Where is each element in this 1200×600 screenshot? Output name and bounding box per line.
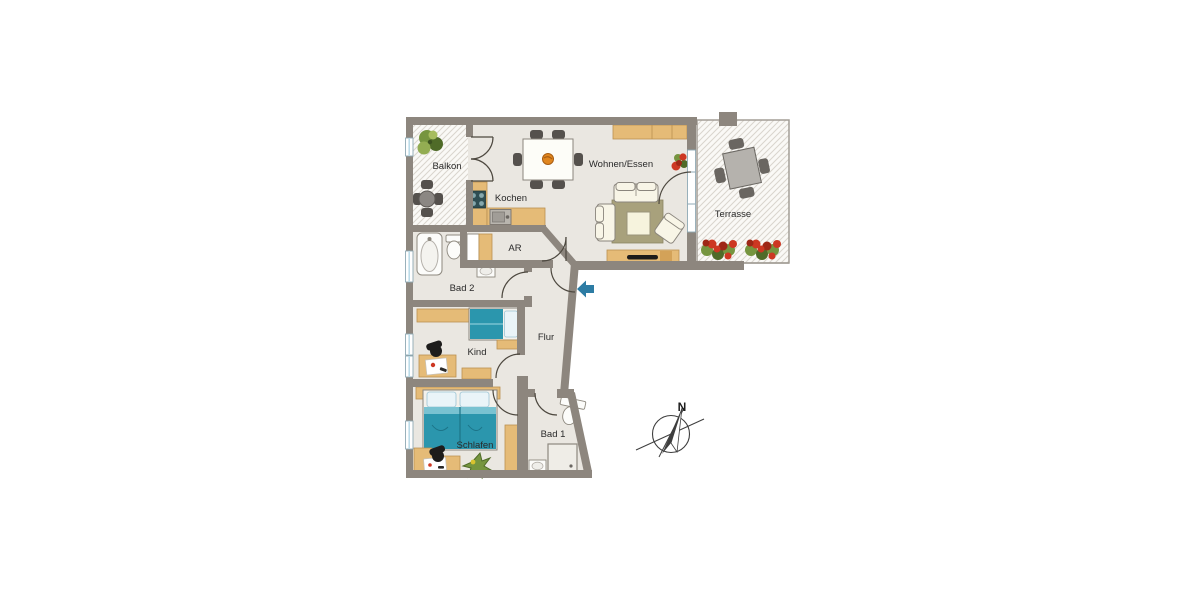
bath2-window (406, 251, 414, 282)
coffee-table (627, 212, 650, 235)
sideboard (613, 125, 687, 139)
toilet-icon (446, 235, 462, 259)
label-flur: Flur (538, 332, 554, 343)
floor-plan-page: Balkon Kochen Wohnen/Essen Terrasse AR B… (0, 0, 1200, 600)
label-ar: AR (508, 243, 521, 254)
sofa-top-icon (614, 183, 658, 203)
shower-icon (548, 444, 577, 472)
label-bad2: Bad 2 (450, 283, 475, 294)
floor-plan-image: Balkon Kochen Wohnen/Essen Terrasse AR B… (0, 0, 1200, 600)
label-terrasse: Terrasse (715, 209, 751, 220)
bedroom-window (406, 421, 414, 449)
bathtub-icon (417, 233, 442, 275)
entrance-arrow-icon (577, 281, 594, 298)
balcony-floor (410, 121, 468, 228)
label-wohnen-essen: Wohnen/Essen (589, 159, 653, 170)
label-balkon: Balkon (432, 161, 461, 172)
label-schlafen: Schlafen (457, 440, 494, 451)
sofa-left-icon (596, 204, 616, 241)
label-bad1: Bad 1 (541, 429, 566, 440)
terrace-glazing (688, 150, 696, 232)
compass-north-label: N (678, 400, 687, 414)
label-kochen: Kochen (495, 193, 527, 204)
tv-icon (627, 255, 658, 260)
dining-set-icon (513, 130, 583, 189)
dresser (462, 368, 491, 379)
desk-icon (419, 355, 456, 377)
wardrobe (505, 425, 518, 475)
label-kind: Kind (467, 347, 486, 358)
sink-icon (490, 210, 511, 225)
compass-icon: N (636, 400, 704, 457)
storage-cabinets (467, 234, 492, 262)
balcony-window (406, 138, 414, 156)
wardrobe (417, 309, 469, 322)
